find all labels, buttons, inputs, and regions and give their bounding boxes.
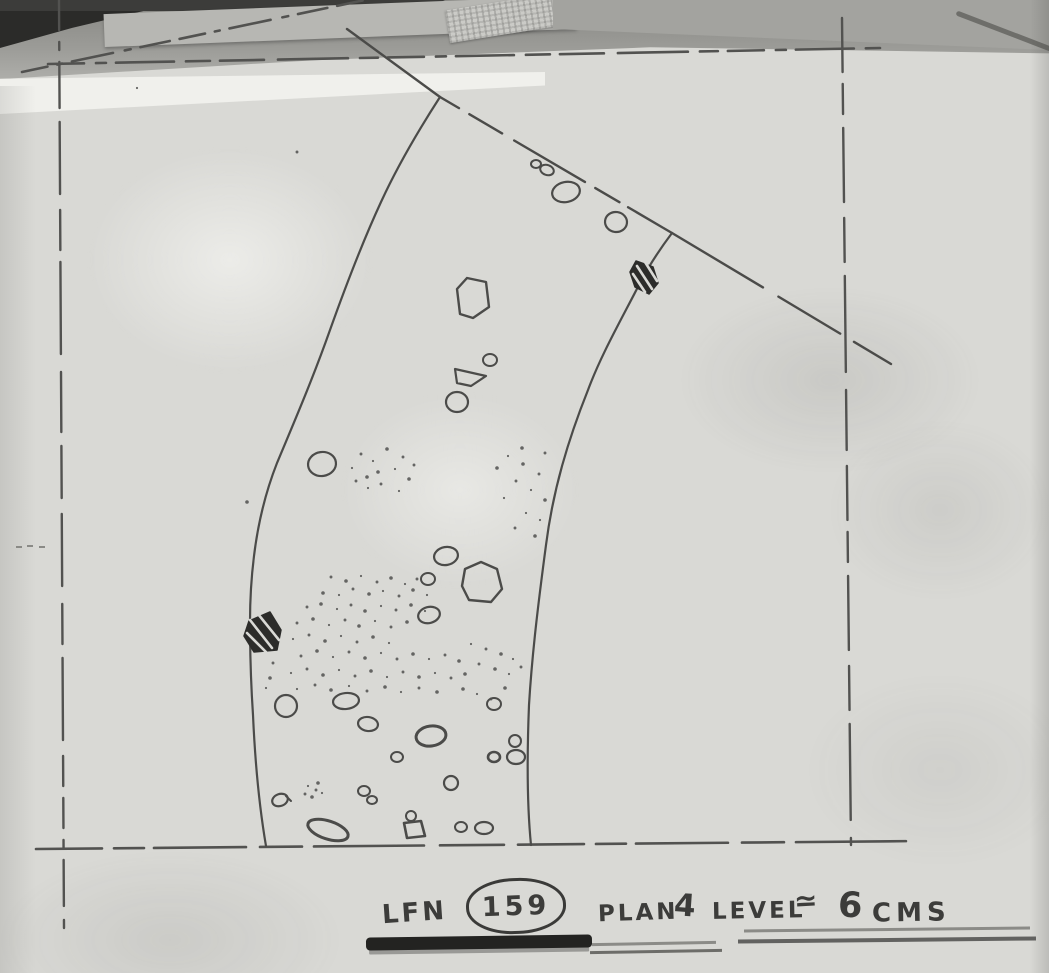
- stipple-dot: [363, 656, 367, 660]
- stipple-dot: [407, 477, 411, 481]
- stone-outline: [462, 562, 502, 602]
- stipple-dot: [352, 588, 355, 591]
- caption-depth-unit: CMS: [872, 897, 951, 928]
- stipple-dot: [363, 609, 367, 613]
- stone-outline: [531, 160, 541, 168]
- stipple-dot: [515, 480, 518, 483]
- stipple-dot: [543, 498, 547, 502]
- stone-outline: [444, 776, 458, 790]
- caption: LFN 159 PLAN 4 LEVEL ≃ 6 CMS: [360, 876, 1049, 973]
- stipple-dot: [245, 500, 249, 504]
- caption-level-underline-1: [744, 927, 1030, 933]
- stipple-dot: [409, 603, 413, 607]
- stipple-dot: [268, 676, 272, 680]
- stipple-dot: [376, 581, 379, 584]
- stipple-dot: [396, 658, 399, 661]
- stipple-dot: [367, 487, 369, 489]
- stipple-dot: [307, 785, 309, 787]
- trench-right-edge: [528, 233, 672, 845]
- stone-outline: [550, 179, 582, 204]
- stipple-dot: [394, 468, 396, 470]
- stipple-dot: [478, 663, 481, 666]
- stone-outline: [332, 692, 360, 711]
- stone-outline: [421, 573, 435, 585]
- stipple-dot: [450, 677, 453, 680]
- stipple-dot: [369, 669, 373, 673]
- stipple-dot: [389, 576, 393, 580]
- scanned-plan-document: LFN 159 PLAN 4 LEVEL ≃ 6 CMS: [0, 0, 1049, 973]
- cut-line-lower-dashed: [672, 233, 891, 364]
- stipple-dot: [508, 673, 510, 675]
- stipple-dot: [311, 617, 315, 621]
- stone-outline: [305, 815, 351, 845]
- stone-outline: [455, 822, 467, 832]
- stipple-dot: [344, 579, 348, 583]
- stipple-dot: [520, 666, 523, 669]
- stipple-dot: [388, 642, 390, 644]
- stone-outline: [604, 211, 629, 234]
- stipple-dot: [525, 512, 527, 514]
- stipple-dot: [366, 690, 369, 693]
- stipple-dot: [380, 605, 382, 607]
- stone-outline: [446, 392, 468, 412]
- stipple-dot: [340, 635, 342, 637]
- stipple-dot: [308, 634, 311, 637]
- stipple-dot: [344, 619, 347, 622]
- grid-line-left-vertical: [59, 0, 64, 928]
- stone-outline: [275, 695, 297, 717]
- stipple-dot: [338, 594, 340, 596]
- stipple-dot: [507, 455, 509, 457]
- stipple-dot: [434, 672, 436, 674]
- stipple-dot: [544, 452, 547, 455]
- stipple-dot: [350, 604, 353, 607]
- stipple-dot: [512, 658, 514, 660]
- stipple-dot: [372, 460, 374, 462]
- stipple-dot: [306, 606, 309, 609]
- stipple-dot: [316, 781, 320, 785]
- trench-left-edge: [250, 97, 440, 846]
- stone-outline: [416, 605, 441, 626]
- caption-plan-number: 4: [673, 887, 700, 925]
- stone-outline: [415, 724, 447, 748]
- stipple-dot: [405, 620, 409, 624]
- stipple-dot: [376, 470, 380, 474]
- stipple-dot: [315, 649, 319, 653]
- stone-outline: [357, 716, 379, 733]
- stipple-dot: [330, 576, 333, 579]
- caption-plan-underline-2: [590, 949, 722, 954]
- stipple-dot: [402, 671, 405, 674]
- stipple-dot: [296, 688, 298, 690]
- stone-outline: [406, 811, 416, 821]
- stipple-dot: [355, 480, 358, 483]
- stipple-dot: [435, 690, 439, 694]
- stipple-dot: [321, 673, 325, 677]
- stipple-dot: [310, 795, 314, 799]
- caption-depth-value: 6: [837, 886, 866, 927]
- stipple-dot: [514, 527, 517, 530]
- stipple-dot: [398, 595, 401, 598]
- stipple-dot: [424, 610, 426, 612]
- stone-outline: [270, 792, 289, 809]
- stipple-dot: [533, 534, 537, 538]
- grid-line-bottom-horizontal: [36, 841, 920, 849]
- grid-line-right-vertical: [842, 18, 851, 845]
- stipple-dot: [418, 687, 421, 690]
- stone-outline: [507, 750, 525, 764]
- stipple-dot: [428, 658, 430, 660]
- stipple-dot: [444, 654, 447, 657]
- stipple-dot: [357, 624, 361, 628]
- caption-level-underline-2: [738, 936, 1036, 943]
- stone-outline: [306, 450, 337, 478]
- caption-plan-word: PLAN: [598, 899, 679, 928]
- stipple-dot: [382, 590, 384, 592]
- stipple-dot: [538, 473, 541, 476]
- stipple-dot: [470, 643, 472, 645]
- caption-plan-underline-1: [592, 941, 716, 946]
- stipple-dot: [390, 626, 393, 629]
- stipple-dot: [323, 639, 327, 643]
- stipple-dot: [380, 483, 383, 486]
- stone-outline: [457, 278, 489, 318]
- stipple-dot: [383, 685, 387, 689]
- stipple-dot: [476, 693, 478, 695]
- stipple-dot: [374, 620, 376, 622]
- stipple-dot: [461, 687, 465, 691]
- stipple-dot: [530, 489, 532, 491]
- cut-line-upper-dashed: [440, 97, 672, 233]
- stipple-dot: [300, 655, 303, 658]
- stipple-dot: [499, 652, 503, 656]
- stone-outline: [433, 545, 460, 567]
- stipple-dot: [493, 667, 497, 671]
- stipple-dot: [314, 684, 317, 687]
- stipple-dot: [321, 591, 325, 595]
- stipple-dot: [520, 446, 524, 450]
- stone-outline: [358, 786, 370, 796]
- stipple-dot: [395, 609, 398, 612]
- stipple-dot: [386, 676, 388, 678]
- stipple-dot: [503, 497, 505, 499]
- stipple-dot: [398, 490, 400, 492]
- stipple-dot: [360, 575, 362, 577]
- stipple-dot: [306, 668, 309, 671]
- stipple-dot: [272, 662, 275, 665]
- stipple-dot: [328, 624, 330, 626]
- stipple-dot: [402, 456, 405, 459]
- plan-drawing-svg: [0, 0, 1049, 973]
- stipple-dot: [351, 467, 353, 469]
- stipple-dot: [413, 464, 416, 467]
- stipple-dot: [304, 793, 307, 796]
- cut-line-upper-solid: [347, 29, 440, 97]
- caption-approx-symbol: ≃: [793, 883, 821, 917]
- stipple-dot: [290, 672, 292, 674]
- stipple-dot: [411, 588, 415, 592]
- stipple-dot: [411, 652, 415, 656]
- stipple-dot: [457, 659, 461, 663]
- stone-outline: [487, 698, 501, 710]
- stipple-dot: [332, 656, 334, 658]
- margin-mark: [39, 546, 45, 548]
- stipple-dot: [348, 651, 351, 654]
- stipple-dot: [400, 691, 402, 693]
- caption-context-number-circled: 159: [465, 876, 567, 935]
- stipple-dot: [385, 447, 389, 451]
- caption-level-word: LEVEL: [712, 897, 806, 925]
- stipple-dot: [485, 648, 488, 651]
- stone-outline: [475, 822, 493, 834]
- stipple-dot: [292, 638, 294, 640]
- stipple-dot: [371, 635, 375, 639]
- stipple-dot: [356, 641, 359, 644]
- stipple-dot: [338, 669, 340, 671]
- stipple-dot: [426, 594, 428, 596]
- stipple-dot: [367, 592, 371, 596]
- caption-heavy-underline: [366, 934, 592, 950]
- stipple-dot: [417, 675, 421, 679]
- stone-outline: [455, 369, 486, 386]
- margin-mark: [16, 546, 22, 548]
- stone-outline: [483, 354, 497, 366]
- stipple-dot: [360, 453, 363, 456]
- stipple-dot: [495, 466, 499, 470]
- stipple-dot: [380, 652, 382, 654]
- grid-line-top-horizontal: [48, 48, 880, 64]
- caption-site-code: LFN: [381, 896, 448, 930]
- stipple-dot: [348, 685, 350, 687]
- stipple-dot: [315, 789, 318, 792]
- stipple-dot: [336, 608, 338, 610]
- stipple-dot: [463, 672, 467, 676]
- stone-outline: [488, 752, 500, 762]
- stipple-dot: [354, 675, 357, 678]
- stipple-dot: [404, 583, 406, 585]
- stipple-dot: [296, 622, 299, 625]
- stipple-dot: [416, 578, 419, 581]
- stipple-dot: [365, 475, 369, 479]
- stipple-dot: [329, 688, 333, 692]
- stipple-dot: [265, 687, 267, 689]
- stipple-dot: [321, 792, 323, 794]
- stipple-dot: [296, 151, 299, 154]
- stone-outline: [539, 163, 556, 177]
- stone-outline: [367, 796, 377, 804]
- margin-mark: [27, 545, 33, 547]
- stone-outline: [404, 821, 425, 838]
- stipple-dot: [539, 519, 541, 521]
- stipple-dot: [136, 87, 138, 89]
- stipple-dot: [521, 462, 525, 466]
- stone-outline: [391, 752, 403, 762]
- stone-outline: [509, 735, 521, 747]
- stipple-dot: [503, 686, 507, 690]
- stipple-dot: [319, 602, 323, 606]
- stipple-dot: [490, 698, 493, 701]
